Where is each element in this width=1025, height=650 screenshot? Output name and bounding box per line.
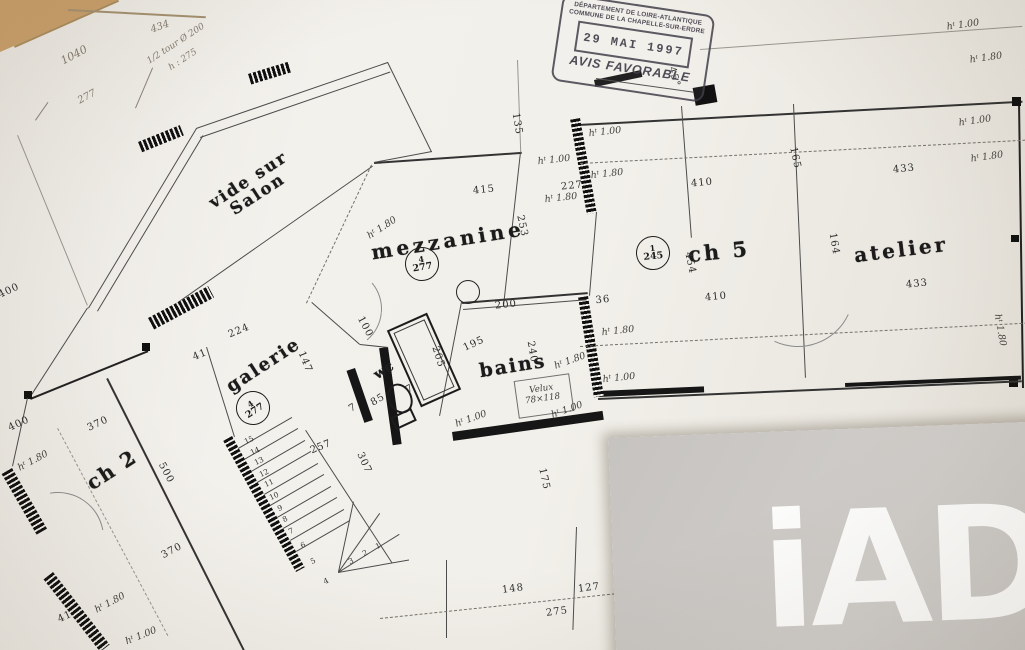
wall-post xyxy=(1011,235,1019,242)
iad-agency-logo: iAD xyxy=(758,483,1025,650)
dim-433-top: 433 xyxy=(892,162,915,175)
dim-36: 36 xyxy=(595,294,611,306)
badge-area: 245 xyxy=(643,251,664,263)
badge-area: 277 xyxy=(412,262,433,274)
dim-415: 415 xyxy=(472,183,495,196)
photo-of-floor-plan: vide sur Salon mezzanine bains galerie c… xyxy=(0,0,1025,650)
dim-200: 200 xyxy=(494,298,517,311)
dim-433-bottom: 433 xyxy=(905,277,928,290)
column-circle xyxy=(456,280,480,304)
dim-410-top: 410 xyxy=(691,177,714,190)
wall-post xyxy=(142,343,150,351)
dimension-line xyxy=(446,560,447,638)
wall-post xyxy=(1012,97,1021,106)
stamp-date: 29 MAI 1997 xyxy=(582,30,684,59)
overlay-paper-sheet: iAD xyxy=(608,420,1025,650)
dim-410-bottom: 410 xyxy=(705,291,728,304)
